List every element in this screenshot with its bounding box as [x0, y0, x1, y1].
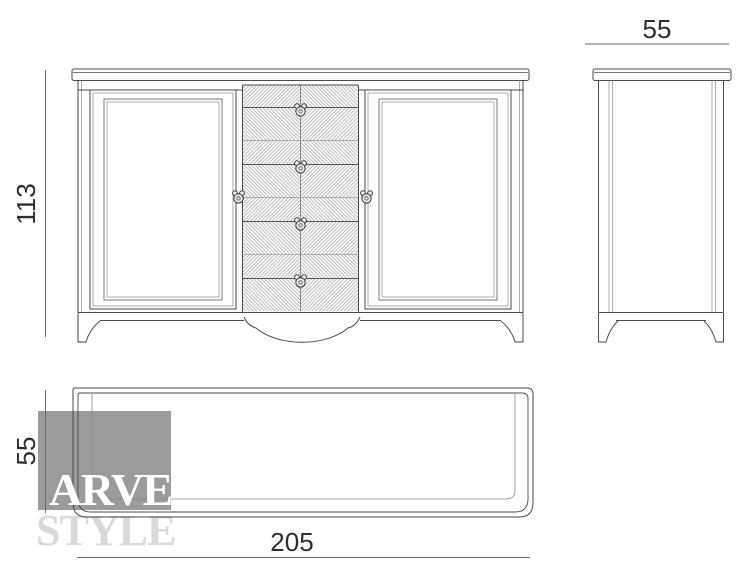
side-left-leg — [599, 313, 619, 343]
dimension-height: 113 — [11, 70, 46, 337]
dimension-side-depth-label: 55 — [643, 14, 672, 44]
front-left-leg — [78, 313, 100, 343]
side-right-leg — [704, 313, 724, 343]
side-view — [593, 69, 731, 342]
watermark-arve-text: ARVE — [49, 467, 172, 513]
dimension-width-label: 205 — [270, 527, 313, 557]
front-apron-arc — [244, 317, 360, 342]
technical-drawing-canvas: STYLE — [0, 0, 739, 566]
right-door — [365, 90, 511, 309]
front-top-molding — [72, 69, 529, 81]
dimension-width: 205 — [77, 527, 530, 558]
side-top-molding — [593, 69, 731, 81]
dimension-height-label: 113 — [11, 183, 41, 224]
dimension-plan-depth: 55 — [11, 390, 46, 513]
dimension-side-depth: 55 — [585, 14, 729, 44]
left-door — [90, 90, 236, 309]
dimension-plan-depth-label: 55 — [11, 437, 41, 466]
front-view — [72, 69, 529, 342]
front-right-leg — [501, 313, 523, 343]
